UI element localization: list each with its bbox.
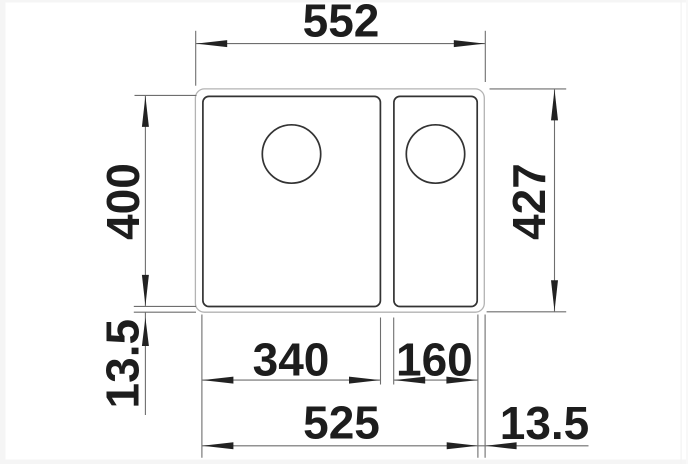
svg-text:552: 552 — [303, 0, 380, 47]
svg-text:13.5: 13.5 — [500, 397, 590, 449]
svg-text:400: 400 — [97, 163, 149, 240]
svg-text:340: 340 — [253, 333, 330, 385]
svg-text:427: 427 — [503, 163, 555, 240]
svg-text:525: 525 — [303, 396, 380, 448]
svg-text:160: 160 — [396, 333, 473, 385]
svg-text:13.5: 13.5 — [97, 319, 149, 409]
